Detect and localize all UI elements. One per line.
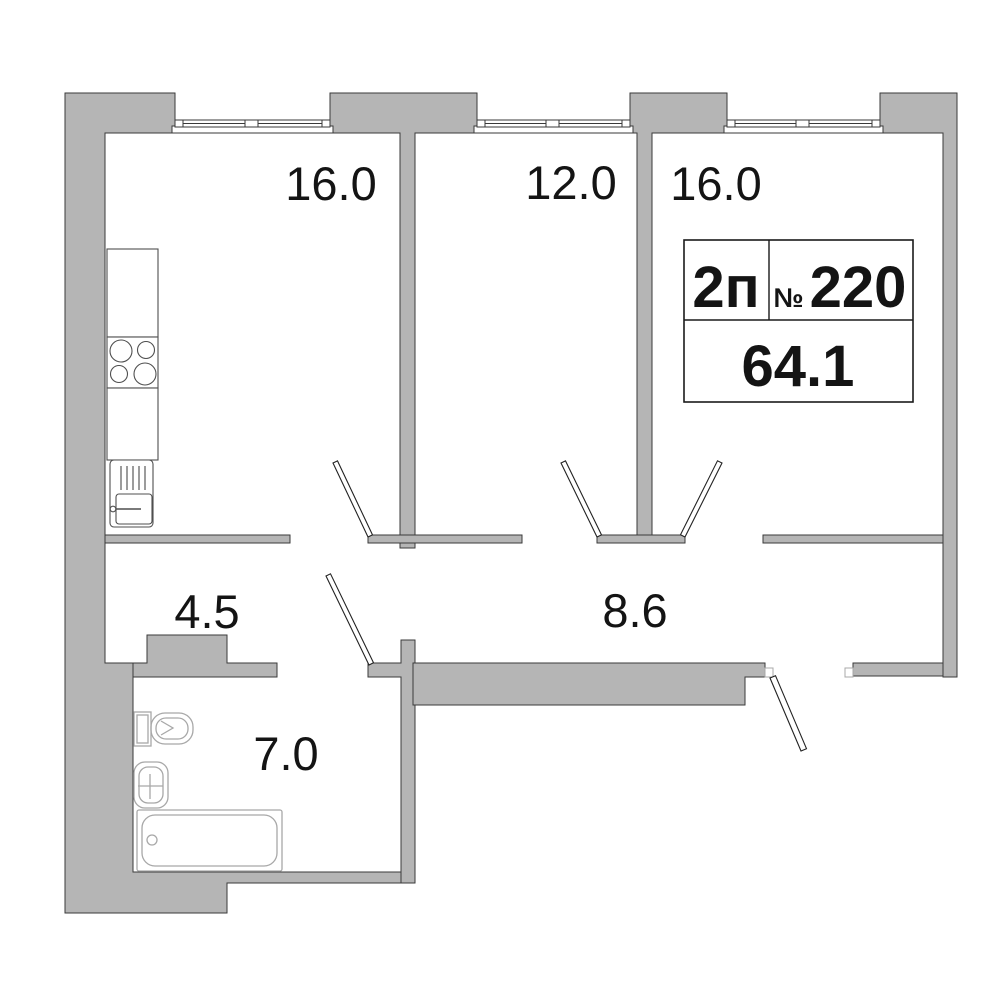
wall-kitchen-bottom [105, 535, 290, 543]
door-leaf-kitchen [333, 461, 373, 537]
unit-info-box: 2п №220 64.1 [684, 240, 913, 402]
kitchen-fixtures [107, 249, 158, 527]
wall-bathroom-right [368, 640, 415, 883]
kitchen-counter-top [107, 249, 158, 337]
entrance-hinge-left [765, 668, 773, 677]
unit-type-label: 2п [692, 255, 759, 320]
toilet [134, 712, 193, 746]
floor-plan-canvas: 16.0 12.0 16.0 4.5 8.6 7.0 2п №220 64.1 [0, 0, 1000, 1000]
kitchen-counter-bottom [107, 388, 158, 460]
wall-corridor-bottom-thick [413, 663, 765, 705]
entrance-door-leaf [770, 676, 807, 751]
room-area-label-bathroom: 7.0 [253, 727, 318, 780]
room-area-label-living-room: 16.0 [670, 157, 761, 210]
wall-corridor-top-a [368, 535, 522, 543]
door-leaf-living-room [681, 461, 723, 537]
door-leaf-bathroom [326, 574, 374, 665]
entrance-hinge-right [845, 668, 853, 677]
unit-total-area-label: 64.1 [742, 334, 855, 399]
walls [65, 93, 957, 913]
window-bedroom [474, 120, 633, 133]
kitchen-sink [110, 460, 153, 527]
window-living-room [724, 120, 883, 133]
room-area-label-bedroom: 12.0 [525, 156, 616, 209]
wall-corridor-top-b [597, 535, 685, 543]
wall-entrance-right [853, 663, 943, 676]
stove [107, 337, 158, 388]
windows [172, 120, 883, 133]
door-leaf-bedroom [561, 461, 602, 537]
washbasin [134, 762, 168, 808]
wall-corridor-top-c [763, 535, 943, 543]
floor-plan-page: 16.0 12.0 16.0 4.5 8.6 7.0 2п №220 64.1 [0, 0, 1000, 1000]
room-area-label-hallway: 4.5 [174, 585, 239, 638]
number-sign: № [774, 283, 804, 313]
vent-shaft-block [133, 635, 277, 677]
window-kitchen [172, 120, 333, 133]
room-area-label-kitchen: 16.0 [285, 157, 376, 210]
room-area-label-corridor: 8.6 [602, 584, 667, 637]
bathtub [137, 810, 282, 871]
